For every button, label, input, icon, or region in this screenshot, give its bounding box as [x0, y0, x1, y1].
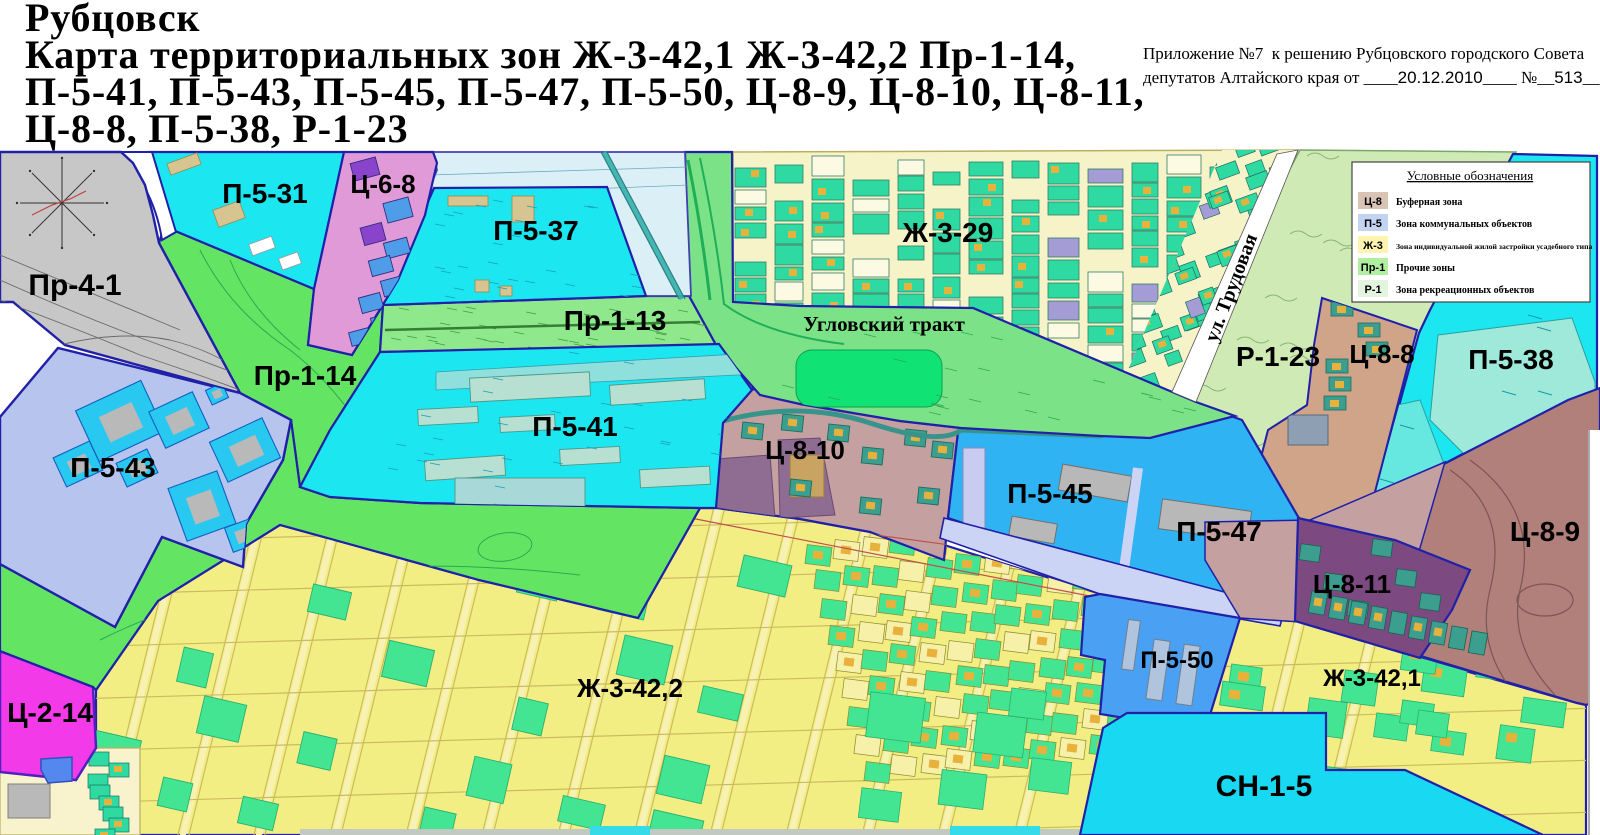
svg-text:Ц-8-9: Ц-8-9 — [1510, 516, 1580, 547]
svg-text:Ц-8: Ц-8 — [1364, 196, 1382, 208]
svg-text:Ж-3-42,2: Ж-3-42,2 — [576, 673, 683, 703]
svg-text:Ж-3-29: Ж-3-29 — [902, 217, 994, 248]
svg-text:П-5-50: П-5-50 — [1140, 647, 1213, 674]
svg-text:П-5: П-5 — [1364, 218, 1382, 230]
svg-text:П-5-43: П-5-43 — [70, 452, 156, 483]
svg-text:Зона индивидуальной жилой заст: Зона индивидуальной жилой застройки усад… — [1396, 242, 1593, 251]
svg-text:СН-1-5: СН-1-5 — [1216, 770, 1313, 803]
svg-text:Пр-1-14: Пр-1-14 — [254, 360, 357, 391]
svg-text:Ж-3: Ж-3 — [1362, 240, 1383, 252]
svg-text:Пр-4-1: Пр-4-1 — [28, 269, 121, 302]
svg-text:Прочие зоны: Прочие зоны — [1396, 263, 1455, 274]
svg-text:Ц-8-8: Ц-8-8 — [1349, 339, 1414, 369]
svg-text:Угловский тракт: Угловский тракт — [803, 312, 965, 336]
svg-text:П-5-31: П-5-31 — [222, 178, 308, 209]
svg-text:П-5-41: П-5-41 — [532, 411, 618, 442]
svg-text:П-5-38: П-5-38 — [1468, 344, 1554, 375]
svg-text:Буферная зона: Буферная зона — [1396, 197, 1462, 208]
svg-text:Зона коммунальных объектов: Зона коммунальных объектов — [1396, 219, 1533, 230]
svg-text:Условные обозначения: Условные обозначения — [1407, 168, 1533, 183]
svg-text:Ц-6-8: Ц-6-8 — [350, 169, 415, 199]
svg-text:Ц-8-11: Ц-8-11 — [1313, 569, 1391, 599]
svg-text:Р-1-23: Р-1-23 — [1236, 341, 1320, 372]
svg-text:Р-1: Р-1 — [1364, 284, 1381, 296]
svg-text:Зона рекреационных объектов: Зона рекреационных объектов — [1396, 285, 1535, 296]
svg-text:П-5-47: П-5-47 — [1176, 516, 1262, 547]
svg-text:Пр-1-13: Пр-1-13 — [564, 305, 667, 336]
svg-text:Пр-1: Пр-1 — [1361, 262, 1385, 274]
svg-text:Ц-8-10: Ц-8-10 — [765, 435, 845, 465]
svg-text:Ж-3-42,1: Ж-3-42,1 — [1322, 665, 1421, 692]
svg-text:П-5-45: П-5-45 — [1007, 478, 1093, 509]
svg-text:Ц-2-14: Ц-2-14 — [7, 697, 93, 728]
svg-text:П-5-37: П-5-37 — [493, 215, 579, 246]
